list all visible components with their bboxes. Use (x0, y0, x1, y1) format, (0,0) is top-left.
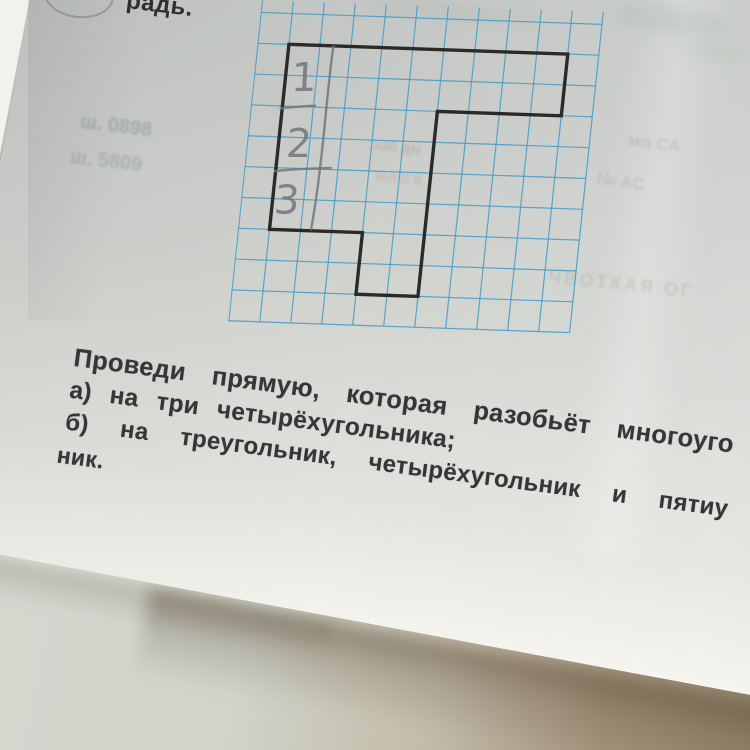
handwritten-label-3: 3 (273, 178, 302, 224)
handwritten-label-2: 2 (285, 121, 314, 167)
handwritten-label-1: 1 (290, 55, 318, 101)
textbook-page-photo: ш. 0898 ш. 5809 мл СА № АС 330 дм мл 0 8… (0, 0, 750, 750)
squared-grid: 1 2 3 (228, 0, 606, 336)
grid-figure: 1 2 3 (228, 0, 606, 336)
pencil-tick-1 (281, 104, 315, 109)
